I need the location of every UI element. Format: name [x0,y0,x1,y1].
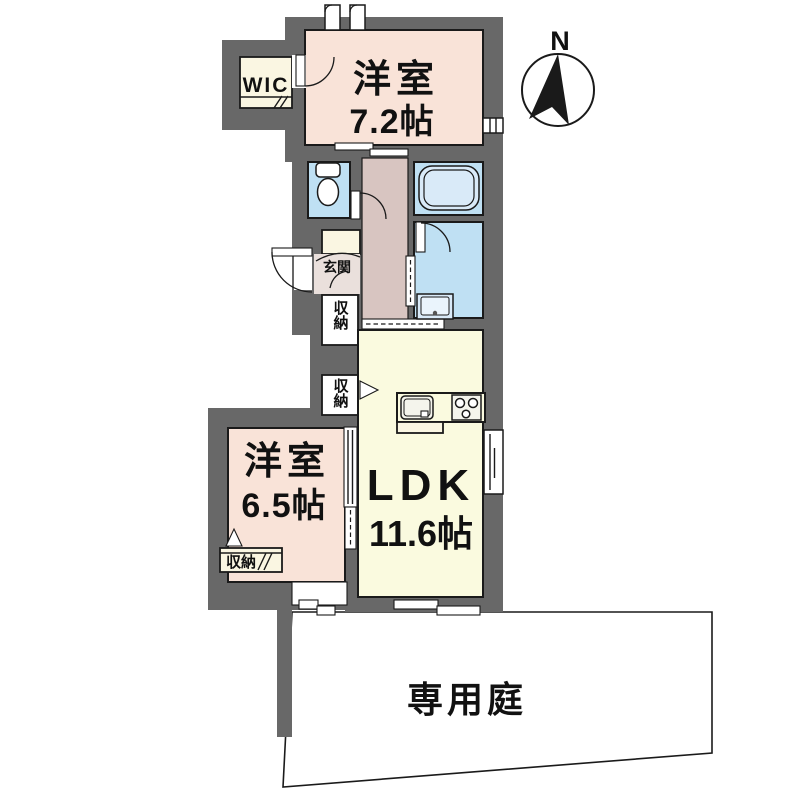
stove-burner-1 [456,399,465,408]
vent-pipe-2 [350,5,365,30]
shoe-cabinet [322,230,360,254]
floor-plan: N WIC 洋室 7.2帖 玄関 収納 収納 LDK 11.6帖 洋室 6.5帖… [0,0,800,800]
toilet-bowl-icon [318,179,339,206]
ldk-garden-window-panel2 [437,606,480,615]
storage-hall-upper-label: 収納 [332,299,349,331]
floor-plan-canvas: N WIC 洋室 7.2帖 玄関 収納 収納 LDK 11.6帖 洋室 6.5帖… [0,0,800,800]
bedroom1-sliding-door-panel1 [335,143,373,150]
ldk-window [484,430,503,494]
bedroom1-name: 洋室 [353,58,439,101]
room-hallway [362,158,408,322]
bedroom2-name: 洋室 [244,440,330,483]
front-door-leaf [272,248,312,256]
stove-burner-3 [462,410,470,418]
garden-label: 専用庭 [407,679,527,720]
bedroom2-ldk-partition [344,427,357,507]
bedroom2-size: 6.5帖 [241,487,326,525]
kitchen-sink-drain [421,411,428,417]
bedroom2-garden-window-panel2 [317,606,335,615]
toilet-tank-icon [316,163,340,177]
toilet-door-leaf [351,191,360,219]
bedroom1-size: 7.2帖 [349,103,434,141]
bedroom1-window [483,118,503,133]
bathroom-door-leaf [416,222,425,252]
storage-hall-lower-label: 収納 [332,377,349,409]
wic-door-leaf [296,55,305,86]
stove-burner-2 [469,399,478,408]
ldk-size: 11.6帖 [369,513,473,554]
ldk-garden-window-panel1 [394,600,438,609]
bedroom1-sliding-door-panel2 [370,149,408,156]
garden-wall-strip [277,590,292,737]
bedroom2-garden-window-panel1 [299,600,318,609]
kitchen-cabinet [397,422,443,433]
compass-north-label: N [550,26,570,56]
ldk-name: LDK [367,461,475,510]
wic-label: WIC [243,74,290,97]
entrance-label: 玄関 [323,259,351,275]
bedroom2-closet-label: 収納 [226,553,256,571]
washbasin-drain [433,311,437,315]
vent-pipe-1 [325,5,340,30]
